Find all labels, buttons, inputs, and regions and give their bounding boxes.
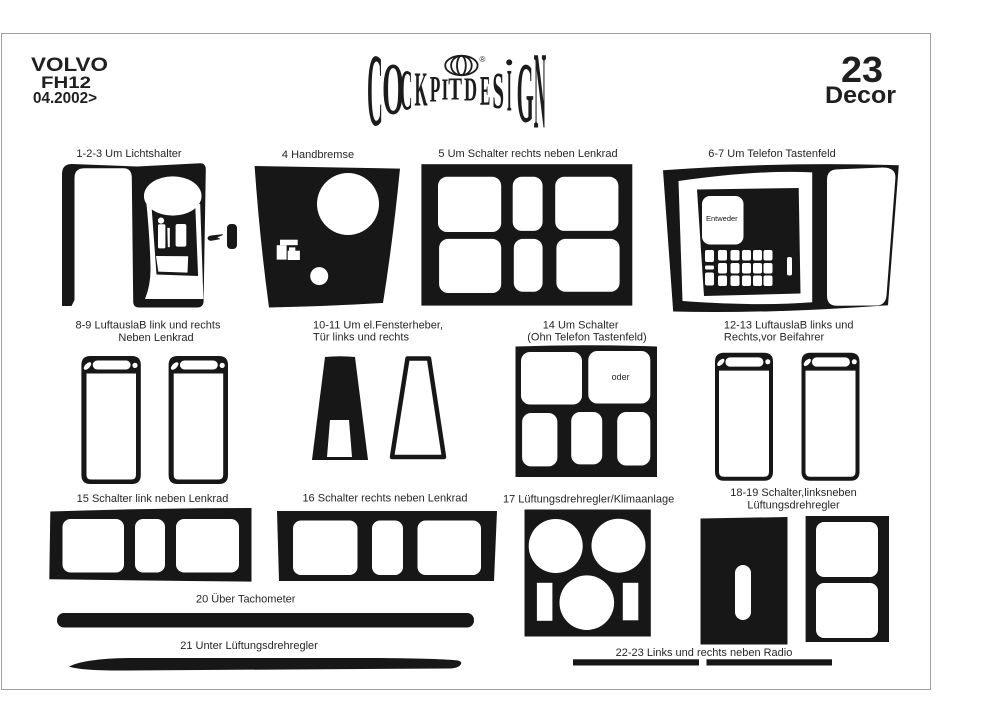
svg-text:Rechts,vor Beifahrer: Rechts,vor Beifahrer	[724, 332, 825, 344]
svg-text:22-23 Links und rechts neben R: 22-23 Links und rechts neben Radio	[616, 647, 793, 659]
svg-text:10-11 Um el.Fensterheber,: 10-11 Um el.Fensterheber,	[313, 319, 443, 331]
svg-text:16 Schalter rechts neben Lenkr: 16 Schalter rechts neben Lenkrad	[302, 492, 467, 504]
svg-text:K: K	[414, 63, 427, 116]
svg-text:Lüftungsdrehregler: Lüftungsdrehregler	[747, 500, 840, 512]
svg-text:17 Lüftungsdrehregler/Klimaanl: 17 Lüftungsdrehregler/Klimaanlage	[503, 494, 674, 506]
svg-text:T: T	[448, 71, 462, 107]
svg-text:C: C	[367, 33, 383, 148]
svg-text:Decor: Decor	[825, 82, 896, 109]
svg-text:14 Um Schalter: 14 Um Schalter	[543, 319, 619, 331]
svg-text:5 Um Schalter rechts neben Len: 5 Um Schalter rechts neben Lenkrad	[438, 148, 617, 160]
svg-text:(Ohn Telefon Tastenfeld): (Ohn Telefon Tastenfeld)	[527, 332, 646, 344]
svg-text:G: G	[517, 45, 534, 141]
svg-text:N: N	[534, 30, 546, 153]
svg-text:8-9 LuftauslaB link und rechts: 8-9 LuftauslaB link und rechts	[76, 320, 221, 332]
svg-text:Tür links und rechts: Tür links und rechts	[313, 332, 409, 344]
svg-text:18-19 Schalter,linksneben: 18-19 Schalter,linksneben	[730, 487, 857, 499]
svg-text:1-2-3 Um Lichtshalter: 1-2-3 Um Lichtshalter	[76, 148, 181, 160]
svg-text:C: C	[400, 60, 412, 124]
svg-text:15 Schalter link neben Lenkrad: 15 Schalter link neben Lenkrad	[77, 493, 229, 505]
svg-text:20 Über Tachometer: 20 Über Tachometer	[196, 594, 296, 606]
svg-text:oder: oder	[612, 372, 630, 382]
svg-text:21 Unter Lüftungsdrehregler: 21 Unter Lüftungsdrehregler	[180, 640, 318, 652]
svg-text:Neben Lenkrad: Neben Lenkrad	[118, 332, 193, 344]
svg-text:E: E	[480, 66, 490, 114]
svg-text:12-13 LuftauslaB links und: 12-13 LuftauslaB links und	[724, 319, 854, 331]
svg-text:4 Handbremse: 4 Handbremse	[282, 149, 354, 161]
svg-text:I: I	[507, 58, 512, 124]
svg-text:D: D	[464, 71, 477, 108]
svg-text:VOLVO: VOLVO	[31, 54, 108, 76]
svg-text:®: ®	[480, 55, 486, 64]
svg-text:04.2002>: 04.2002>	[33, 90, 97, 107]
svg-text:P: P	[430, 69, 441, 110]
svg-text:6-7 Um Telefon Tastenfeld: 6-7 Um Telefon Tastenfeld	[708, 148, 835, 160]
svg-text:Entweder: Entweder	[706, 214, 738, 223]
svg-text:S: S	[492, 62, 504, 120]
